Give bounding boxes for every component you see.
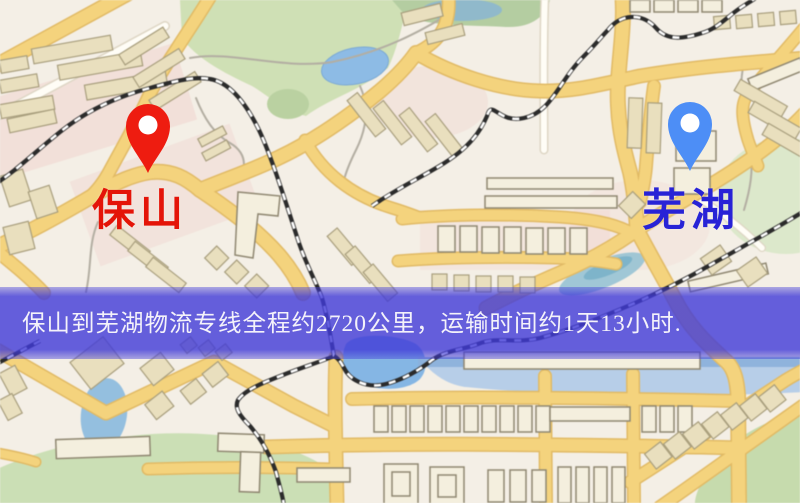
route-info-banner: 保山到芜湖物流专线全程约2720公里，运输时间约1天13小时. <box>0 287 800 359</box>
origin-pin-hole-icon <box>139 116 158 135</box>
destination-marker-pin[interactable] <box>660 96 720 176</box>
destination-pin-hole-icon <box>681 114 700 133</box>
origin-label: 保山 <box>92 176 188 238</box>
route-info-text: 保山到芜湖物流专线全程约2720公里，运输时间约1天13小时. <box>22 304 682 338</box>
destination-label: 芜湖 <box>642 174 740 238</box>
map-canvas[interactable]: 保山 芜湖 保山到芜湖物流专线全程约2720公里，运输时间约1天13小时. <box>0 0 800 503</box>
map-tiles <box>0 0 800 503</box>
origin-marker-pin[interactable] <box>118 98 178 178</box>
